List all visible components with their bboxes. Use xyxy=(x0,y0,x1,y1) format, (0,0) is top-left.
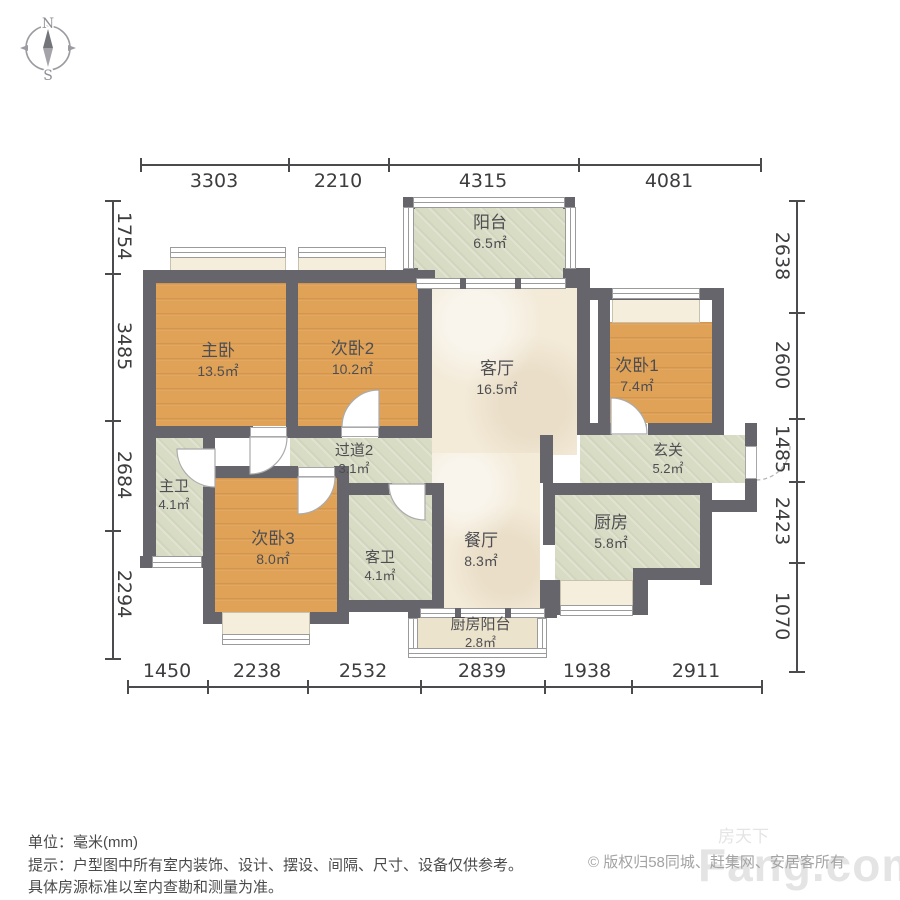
dim-tick xyxy=(789,200,805,202)
room-area: 10.2㎡ xyxy=(332,360,373,378)
door-guest-bath xyxy=(389,484,425,494)
dim-line xyxy=(127,686,763,688)
window-bedroom-1 xyxy=(612,288,700,299)
footer-unit-line: 单位：毫米(mm) xyxy=(28,831,138,852)
dim-value: 4315 xyxy=(423,170,543,192)
room-name: 厨房阳台 xyxy=(450,615,510,635)
bay-window-seat xyxy=(222,612,310,636)
compass-south-label: S xyxy=(43,68,53,84)
window-balcony-left xyxy=(403,207,414,269)
dim-value: 3303 xyxy=(154,170,274,192)
dim-value: 2210 xyxy=(278,170,398,192)
dimension-line-left: 1754 3485 2684 2294 xyxy=(98,200,132,660)
window-mullion xyxy=(515,278,521,289)
wall-segment xyxy=(348,483,392,495)
wall-segment xyxy=(712,500,757,512)
wall-segment xyxy=(540,435,553,483)
dim-tick xyxy=(789,671,805,673)
wall-segment xyxy=(203,612,222,624)
window-balcony-right xyxy=(565,207,576,269)
dim-value: 2294 xyxy=(114,564,134,624)
dim-tick xyxy=(127,680,129,694)
wall-segment xyxy=(286,426,298,438)
room-label-master-bedroom: 主卧 13.5㎡ xyxy=(158,340,278,380)
room-area: 5.2㎡ xyxy=(652,461,683,478)
footer-copyright: © 版权归58同城、赶集网、安居客所有 xyxy=(588,851,845,872)
dim-value: 1485 xyxy=(772,419,792,479)
dim-value: 2638 xyxy=(772,226,792,286)
dim-value: 2911 xyxy=(641,660,751,682)
wall-segment xyxy=(298,426,342,438)
door-bedroom-1 xyxy=(611,424,647,434)
wall-segment xyxy=(543,483,712,495)
footer-tip-line1: 提示：户型图中所有室内装饰、设计、摆设、间隔、尺寸、设备仅供参考。 xyxy=(28,854,523,875)
room-name: 厨房 xyxy=(594,512,628,534)
room-area: 13.5㎡ xyxy=(197,362,238,380)
wall-segment xyxy=(143,270,156,568)
room-label-bedroom-1: 次卧1 7.4㎡ xyxy=(577,355,697,395)
dim-tick xyxy=(544,680,546,694)
room-label-bedroom-3: 次卧3 8.0㎡ xyxy=(213,528,333,568)
dim-tick xyxy=(105,420,121,422)
room-area: 8.3㎡ xyxy=(464,552,497,570)
dimension-line-bottom: 1450 2238 2532 2839 1938 2911 xyxy=(127,660,763,696)
window-master-bath xyxy=(152,556,202,568)
room-label-bedroom-2: 次卧2 10.2㎡ xyxy=(295,338,410,378)
dim-tick xyxy=(789,562,805,564)
dim-tick xyxy=(207,680,209,694)
wall-segment xyxy=(745,423,757,447)
dim-tick xyxy=(105,200,121,202)
room-area: 4.1㎡ xyxy=(158,497,189,514)
dim-value: 2532 xyxy=(308,660,418,682)
window-balcony-sill xyxy=(416,278,566,289)
dim-tick xyxy=(105,530,121,532)
dim-value: 4081 xyxy=(609,170,729,192)
wall-segment xyxy=(648,423,724,435)
wall-segment xyxy=(337,478,349,612)
room-name: 客卫 xyxy=(365,548,395,568)
bay-window-seat xyxy=(560,580,633,607)
wall-segment xyxy=(633,580,648,615)
room-name: 次卧3 xyxy=(251,528,294,550)
room-label-living: 客厅 16.5㎡ xyxy=(437,358,557,398)
dim-tick xyxy=(420,680,422,694)
footer-tip-line2: 具体房源标准以室内查勘和测量为准。 xyxy=(28,876,283,897)
room-label-hallway-2: 过道2 3.1㎡ xyxy=(295,441,413,477)
window-bedroom-3 xyxy=(222,634,310,645)
room-name: 主卧 xyxy=(201,340,235,362)
dimension-line-top: 3303 2210 4315 4081 xyxy=(140,156,762,194)
room-name: 次卧1 xyxy=(615,355,658,377)
wall-segment xyxy=(633,568,712,580)
dim-value: 1754 xyxy=(114,206,134,266)
bay-window-seat xyxy=(612,298,700,323)
room-area: 4.1㎡ xyxy=(364,568,395,585)
room-name: 玄关 xyxy=(653,441,683,461)
room-label-kitchen-balcony: 厨房阳台 2.8㎡ xyxy=(418,615,543,651)
room-name: 阳台 xyxy=(473,212,507,234)
dim-value: 2238 xyxy=(202,660,312,682)
door-master-bedroom xyxy=(250,427,287,437)
wall-segment xyxy=(310,612,349,624)
room-label-kitchen: 厨房 5.8㎡ xyxy=(552,512,670,552)
dim-value: 2839 xyxy=(427,660,537,682)
room-name: 餐厅 xyxy=(464,530,498,552)
room-label-dining: 餐厅 8.3㎡ xyxy=(422,530,540,570)
wall-segment xyxy=(143,426,253,438)
compass-icon: N S xyxy=(16,10,80,84)
compass-north-label: N xyxy=(42,16,54,32)
dim-tick xyxy=(105,273,121,275)
wall-segment xyxy=(378,426,432,438)
room-label-guest-bath: 客卫 4.1㎡ xyxy=(322,548,438,584)
dim-tick xyxy=(105,658,121,660)
room-area: 2.8㎡ xyxy=(465,635,496,652)
room-name: 主卫 xyxy=(159,477,189,497)
wall-segment xyxy=(712,288,724,435)
dim-value: 2423 xyxy=(772,491,792,551)
door-entry xyxy=(745,446,757,479)
window-bedroom-2 xyxy=(298,247,386,258)
dimension-line-right: 2638 2600 1485 2423 1070 xyxy=(780,200,814,675)
dim-tick xyxy=(140,158,142,172)
room-area: 3.1㎡ xyxy=(338,461,369,478)
floorplan-canvas: N S xyxy=(0,0,900,900)
room-area: 8.0㎡ xyxy=(256,550,289,568)
dim-tick xyxy=(578,158,580,172)
wall-segment xyxy=(545,602,557,618)
room-area: 7.4㎡ xyxy=(620,377,653,395)
dim-tick xyxy=(307,680,309,694)
dim-value: 1070 xyxy=(772,586,792,646)
room-area: 16.5㎡ xyxy=(476,380,517,398)
room-name: 客厅 xyxy=(480,358,514,380)
dim-value: 1938 xyxy=(532,660,642,682)
wall-segment xyxy=(563,268,590,288)
window-kitchen xyxy=(560,605,633,616)
dim-tick xyxy=(761,680,763,694)
dim-tick xyxy=(631,680,633,694)
dim-line xyxy=(796,200,798,673)
room-name: 过道2 xyxy=(335,441,373,461)
room-area: 6.5㎡ xyxy=(473,234,506,252)
dim-tick xyxy=(789,312,805,314)
dim-value: 2684 xyxy=(114,445,134,505)
window-balcony-top xyxy=(413,197,565,208)
dim-value: 2600 xyxy=(772,335,792,395)
dim-value: 3485 xyxy=(114,316,134,376)
dim-line xyxy=(140,164,762,166)
window-master-bedroom xyxy=(170,247,286,258)
dim-tick xyxy=(760,158,762,172)
room-name: 次卧2 xyxy=(331,338,374,360)
room-label-entrance: 玄关 5.2㎡ xyxy=(608,441,728,477)
wall-segment xyxy=(418,278,432,438)
dim-tick xyxy=(789,481,805,483)
wall-segment xyxy=(590,423,612,435)
room-label-balcony: 阳台 6.5㎡ xyxy=(425,212,555,252)
window-mullion xyxy=(460,278,466,289)
room-area: 5.8㎡ xyxy=(594,534,627,552)
door-bedroom-2 xyxy=(341,427,379,437)
